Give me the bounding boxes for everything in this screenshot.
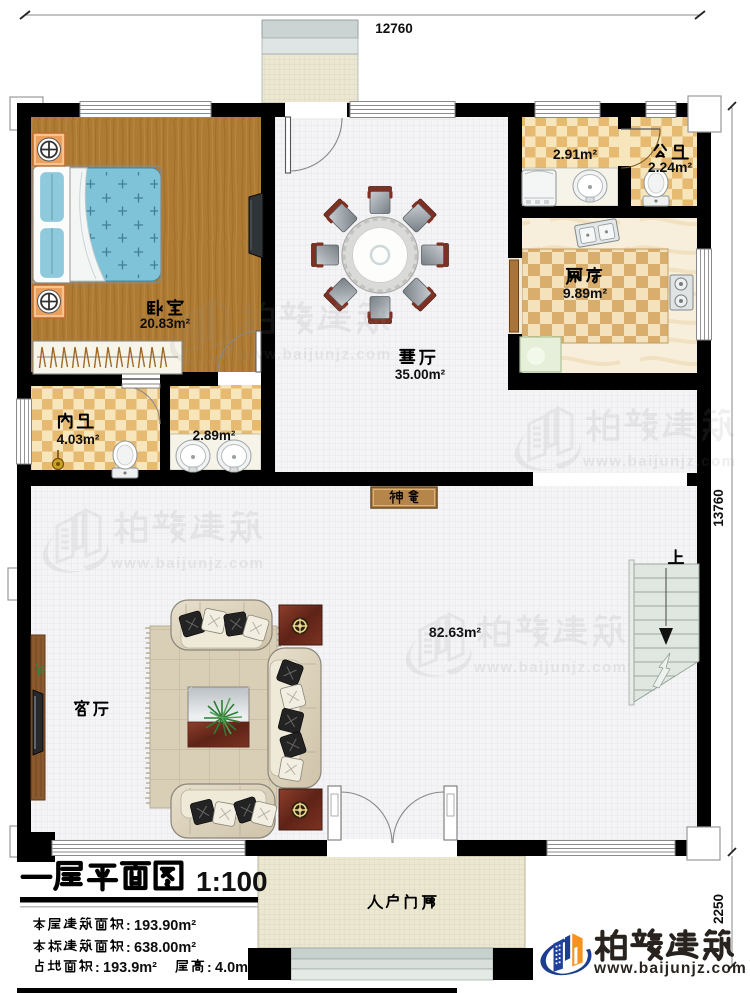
svg-text:12760: 12760 bbox=[375, 21, 413, 36]
svg-text::: : bbox=[126, 939, 131, 955]
svg-text:4.0m: 4.0m bbox=[215, 960, 248, 976]
svg-text:35.00m²: 35.00m² bbox=[395, 367, 446, 382]
svg-text:www.baijunjz.com: www.baijunjz.com bbox=[473, 659, 627, 676]
svg-text:9.89m²: 9.89m² bbox=[563, 285, 608, 301]
svg-text:193.9m²: 193.9m² bbox=[103, 960, 157, 976]
svg-text:638.00m²: 638.00m² bbox=[134, 940, 196, 956]
svg-text:www.baijunjz.com: www.baijunjz.com bbox=[237, 346, 391, 363]
svg-text:2250: 2250 bbox=[711, 894, 726, 924]
svg-text:4.03m²: 4.03m² bbox=[57, 432, 100, 447]
svg-text:www.baijunjz.com: www.baijunjz.com bbox=[582, 453, 736, 470]
svg-text:www.baijunjz.com: www.baijunjz.com bbox=[110, 555, 264, 572]
svg-text:2.89m²: 2.89m² bbox=[193, 428, 236, 443]
svg-text:www.baijunjz.com: www.baijunjz.com bbox=[593, 960, 747, 977]
svg-text::: : bbox=[126, 917, 131, 933]
svg-text:193.90m²: 193.90m² bbox=[134, 918, 196, 934]
svg-text:2.91m²: 2.91m² bbox=[553, 146, 598, 162]
svg-text::: : bbox=[95, 959, 100, 975]
svg-text::: : bbox=[207, 959, 212, 975]
svg-text:1:100: 1:100 bbox=[196, 866, 268, 897]
svg-text:13760: 13760 bbox=[711, 489, 726, 527]
svg-text:2.24m²: 2.24m² bbox=[648, 159, 693, 175]
